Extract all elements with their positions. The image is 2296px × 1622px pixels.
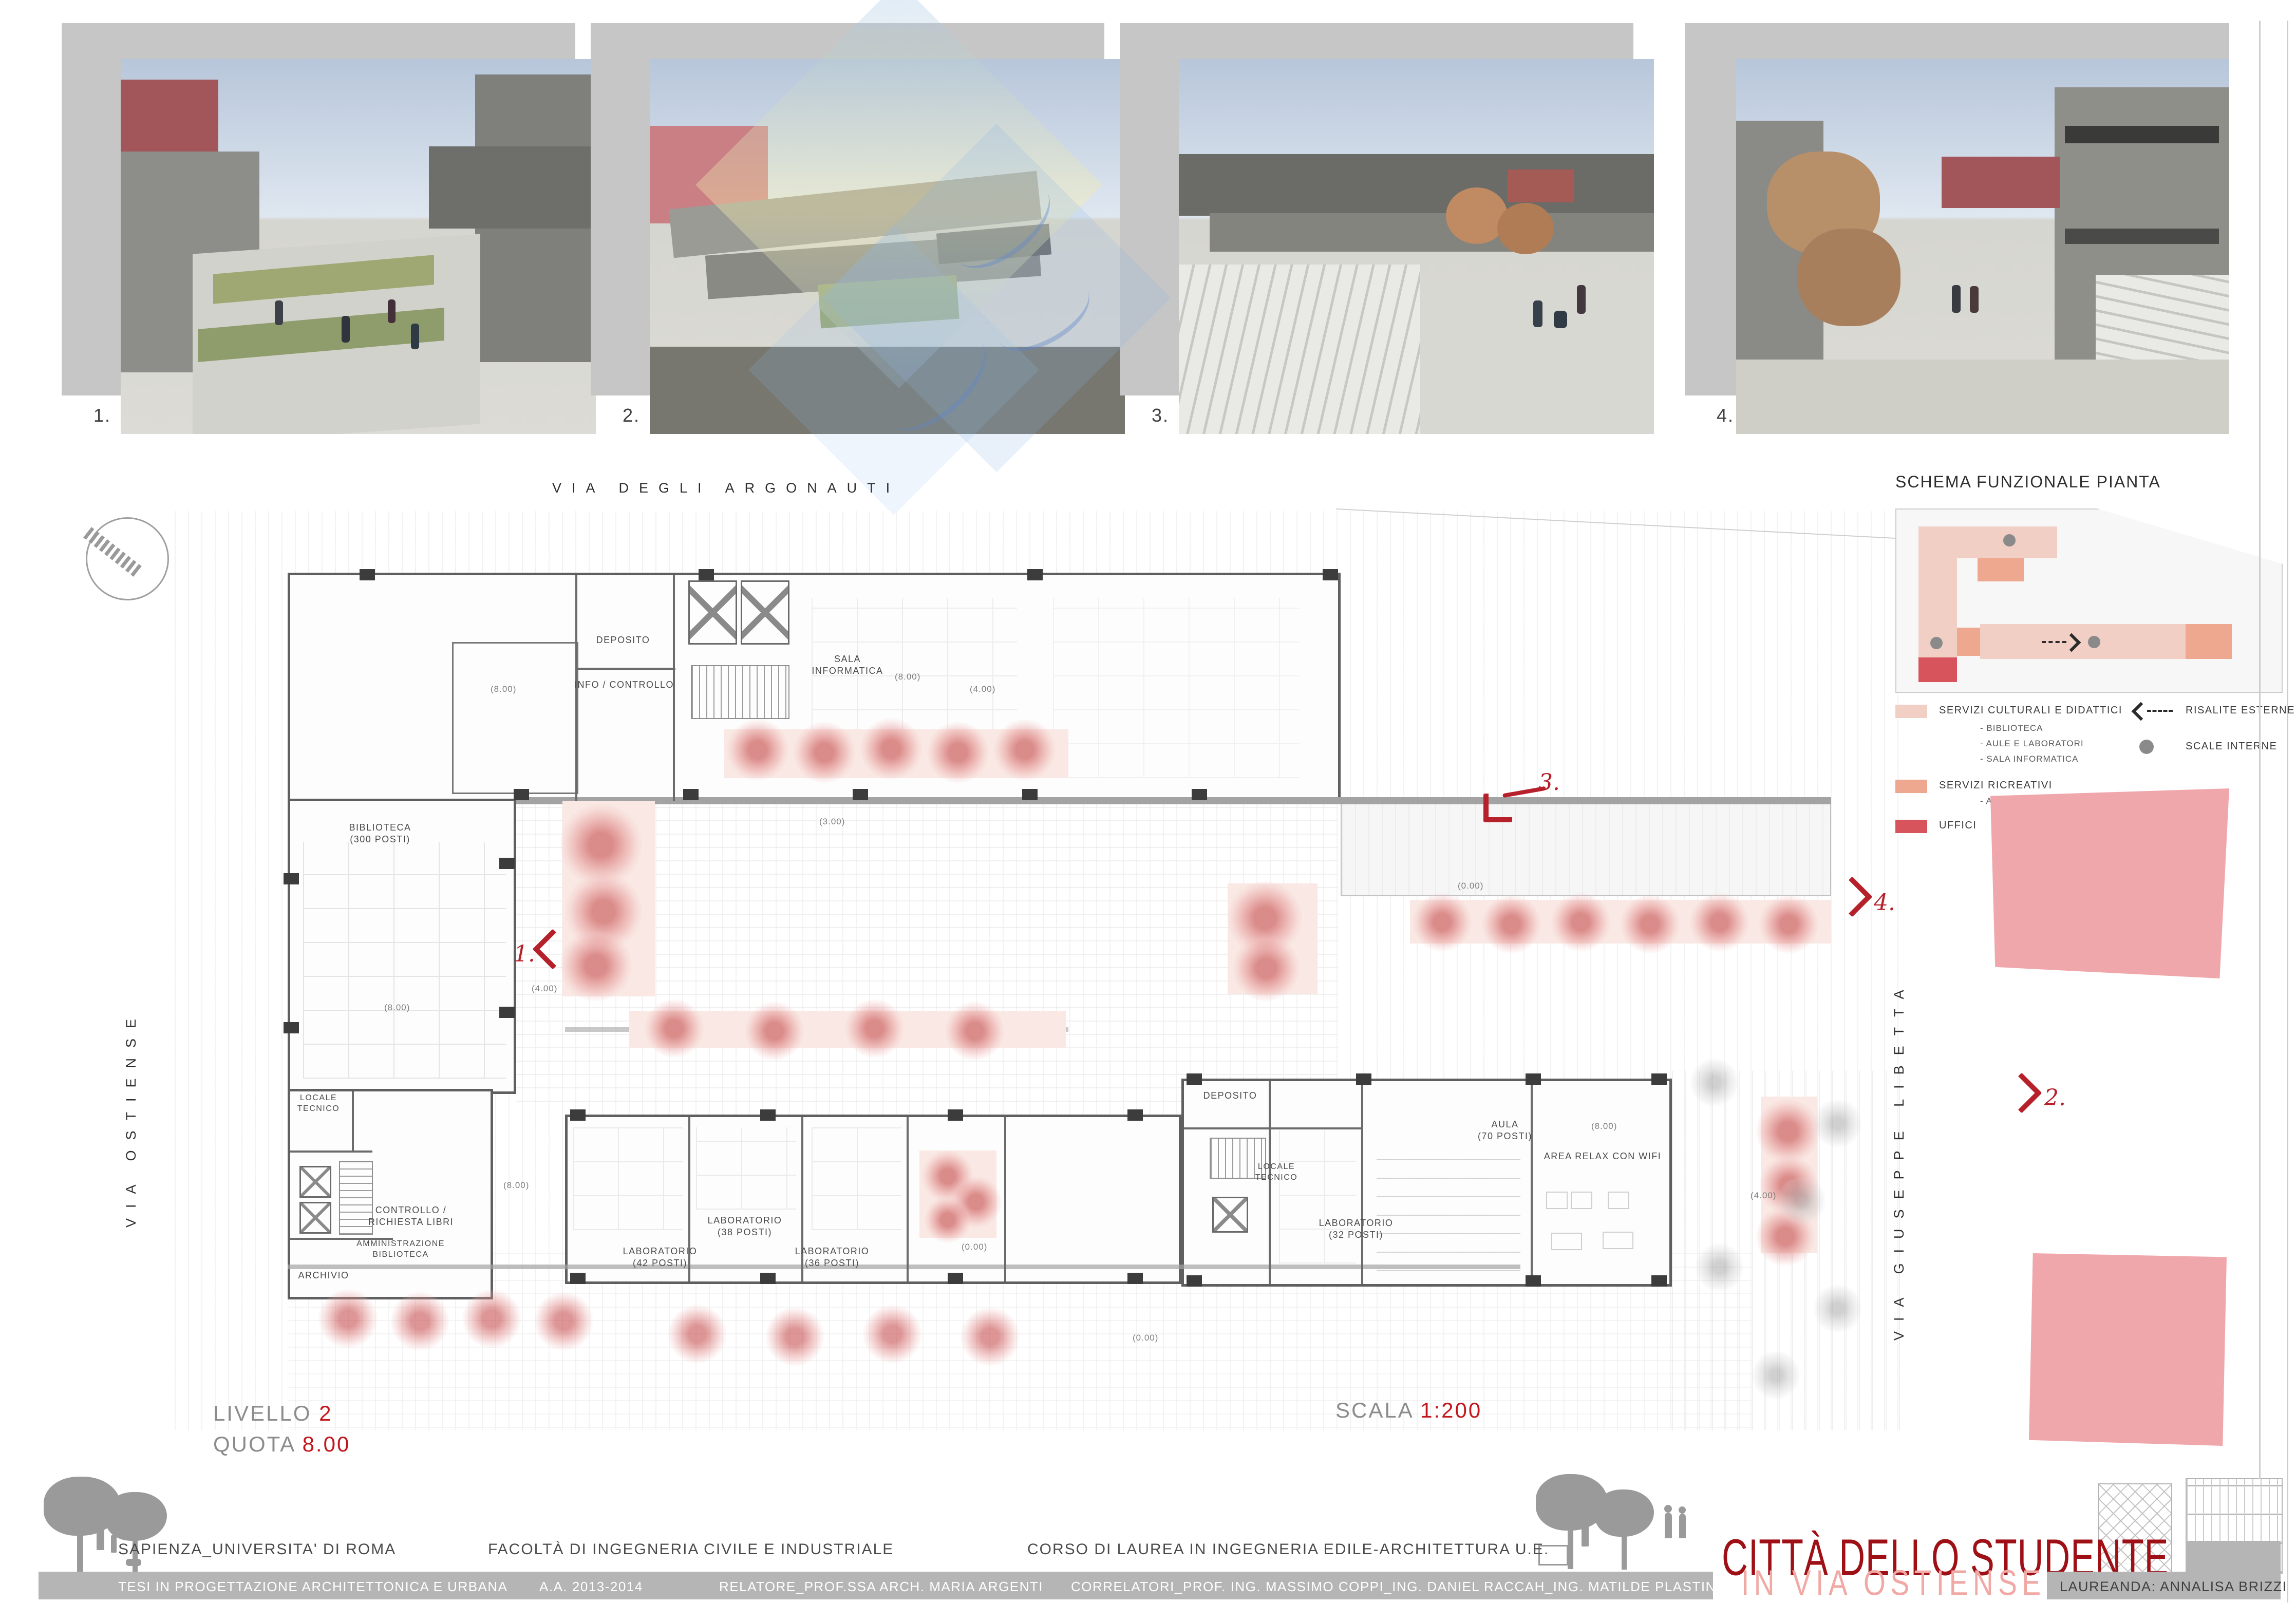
tree <box>1482 895 1541 954</box>
relax-furniture <box>1608 1192 1629 1209</box>
wall-pillar <box>1192 789 1207 800</box>
person-silhouette <box>1577 285 1586 314</box>
wall-pillar <box>760 1273 776 1284</box>
room-label-aula: AULA (70 POSTI) <box>1459 1119 1551 1143</box>
pine-trunk <box>77 1528 83 1572</box>
wall-pillar <box>570 1109 586 1121</box>
legend-item-ricreativi: SERVIZI RICREATIVI <box>1939 780 2053 791</box>
wall-pillar <box>760 1109 776 1121</box>
dim-label: (0.00) <box>962 1242 987 1252</box>
wall-pillar <box>699 569 714 580</box>
legend-subitem: - AULE E LABORATORI <box>1980 739 2084 749</box>
legend-item-culturali: SERVIZI CULTURALI E DIDATTICI <box>1939 705 2122 716</box>
livello-label: LIVELLO 2 <box>213 1401 332 1426</box>
context-tower-base <box>2186 1541 2281 1572</box>
street-label-ostiense: VIA OSTIENSE <box>123 786 139 1228</box>
lab-furniture <box>812 1127 901 1230</box>
minimap-relax <box>2186 624 2232 659</box>
render-shape <box>429 146 596 229</box>
interior-wall <box>1004 1117 1006 1281</box>
wall-pillar <box>948 1109 963 1121</box>
footer-correlatori: CORRELATORI_PROF. ING. MASSIMO COPPI_ING… <box>1071 1579 1726 1595</box>
dim-label: (0.00) <box>1458 881 1483 891</box>
room-label-info-controllo: INFO / CONTROLLO <box>568 679 681 691</box>
wall-pillar <box>683 789 699 800</box>
minimap-stair-dot <box>1930 637 1943 649</box>
render-number-4: 4. <box>1717 405 1734 426</box>
dim-label: (8.00) <box>895 672 920 682</box>
legend-swatch-ricreativi <box>1895 780 1927 793</box>
relax-furniture <box>1546 1192 1568 1209</box>
tree <box>925 1197 971 1243</box>
wall-pillar <box>1526 1275 1541 1287</box>
view-marker-1: 1. <box>514 941 535 967</box>
person-silhouette <box>97 1524 104 1550</box>
relax-furniture <box>1551 1233 1582 1250</box>
tree <box>745 1002 804 1061</box>
tree <box>1551 893 1610 952</box>
person-silhouette <box>1970 286 1979 313</box>
room-label-deposito-east: DEPOSITO <box>1187 1090 1274 1102</box>
wall-pillar <box>1127 1109 1143 1121</box>
tree <box>534 1292 593 1351</box>
minimap-band <box>1980 624 2186 659</box>
person-silhouette <box>1533 300 1542 327</box>
minimap-relax <box>1957 628 1980 656</box>
quota-value: 8.00 <box>303 1432 351 1456</box>
tree <box>1233 935 1300 1002</box>
person-silhouette <box>1664 1505 1672 1513</box>
elevator <box>1212 1197 1248 1233</box>
minimap-band <box>1918 526 2057 558</box>
livello-value: 2 <box>319 1401 332 1425</box>
room-label-biblioteca: BIBLIOTECA (300 POSTI) <box>329 822 431 846</box>
view-marker-4: 4. <box>1874 890 1895 916</box>
room-label-controllo-libri: CONTROLLO / RICHIESTA LIBRI <box>354 1204 467 1229</box>
dim-label: (8.00) <box>503 1180 529 1191</box>
footer-year: A.A. 2013-2014 <box>539 1579 643 1595</box>
quota-text: QUOTA <box>213 1432 295 1456</box>
relax-furniture <box>1571 1192 1592 1209</box>
dim-label: (4.00) <box>532 984 557 994</box>
person-silhouette <box>1554 311 1567 328</box>
person-silhouette <box>342 316 350 343</box>
room-label-locale-tecnico-east: LOCALE TECNICO <box>1243 1162 1310 1183</box>
aula-seat-rows <box>1377 1158 1520 1271</box>
dim-label: (4.00) <box>1751 1191 1776 1201</box>
person-silhouette <box>111 1534 117 1553</box>
furniture <box>1053 598 1300 778</box>
wall-pillar <box>853 789 868 800</box>
render-shape <box>2065 229 2219 244</box>
room-label-amministrazione: AMMINISTRAZIONE BIBLIOTECA <box>334 1239 467 1260</box>
room-label-sala-informatica: SALA INFORMATICA <box>794 653 901 677</box>
building-link-arm <box>1341 801 1831 896</box>
plaza-edge <box>288 1265 1520 1269</box>
wall-pillar <box>284 1022 299 1033</box>
view-marker-2: 2. <box>2044 1085 2066 1111</box>
tree-gray <box>1690 1058 1739 1107</box>
scala-value: 1:200 <box>1420 1398 1482 1422</box>
street-label-libetta: VIA GIUSEPPE LIBETTA <box>1891 899 1907 1341</box>
tree <box>994 719 1056 781</box>
wall-pillar <box>499 1007 515 1018</box>
tree <box>1756 1099 1820 1163</box>
dim-label: (8.00) <box>384 1003 410 1013</box>
library-furniture <box>303 842 506 1079</box>
legend-symbol-scale: SCALE INTERNE <box>2186 741 2277 752</box>
view-marker-arrow-2 <box>2001 1072 2042 1113</box>
render-tree <box>1497 203 1554 254</box>
room-label-archivio: ARCHIVIO <box>288 1270 360 1281</box>
street-label-argonauti: VIA DEGLI ARGONAUTI <box>552 480 900 496</box>
pine-trunk <box>1568 1523 1573 1569</box>
render-shape <box>1179 154 1654 216</box>
interior-wall <box>1531 1081 1533 1284</box>
tree <box>794 722 855 783</box>
person-silhouette <box>1582 1522 1589 1546</box>
footer-university: SAPIENZA_UNIVERSITA' DI ROMA <box>118 1541 396 1558</box>
interior-wall <box>575 668 675 670</box>
tree-gray <box>1752 1351 1800 1400</box>
view-marker-arrow-3 <box>1483 794 1512 822</box>
room-label-lab38: LABORATORIO (38 POSTI) <box>691 1215 799 1239</box>
render-number-1: 1. <box>93 405 111 426</box>
render-number-2: 2. <box>623 405 640 426</box>
room-label-lab32: LABORATORIO (32 POSTI) <box>1300 1217 1413 1241</box>
tree <box>1690 893 1749 952</box>
elevator <box>299 1202 331 1234</box>
dim-label: (8.00) <box>491 684 516 694</box>
minimap-stair-dot <box>2003 534 2016 546</box>
render-shape <box>1210 213 1654 252</box>
person-silhouette <box>411 324 419 349</box>
render-photo-1 <box>121 59 596 434</box>
legend-swatch-culturali <box>1895 705 1927 718</box>
legend-stair-dot <box>2139 740 2154 754</box>
render-shape <box>1942 157 2060 208</box>
pine-trunk <box>1622 1530 1627 1570</box>
relax-furniture <box>1603 1232 1633 1249</box>
render-shape <box>1508 169 1574 202</box>
room-label-deposito: DEPOSITO <box>579 634 667 646</box>
render-shape <box>1736 360 2229 434</box>
dim-label: (3.00) <box>819 817 845 827</box>
render-stairs <box>1179 265 1420 434</box>
elevator <box>741 580 789 645</box>
tree <box>462 1289 521 1348</box>
interior-wall <box>1184 1127 1361 1129</box>
tree <box>845 999 904 1058</box>
room-label-lab42: LABORATORIO (42 POSTI) <box>606 1246 714 1270</box>
person-silhouette <box>388 299 396 323</box>
tree <box>318 1289 378 1348</box>
render-number-3: 3. <box>1152 405 1169 426</box>
footer-faculty: FACOLTÀ DI INGEGNERIA CIVILE E INDUSTRIA… <box>488 1541 894 1558</box>
tree <box>560 930 632 1002</box>
legend-subitem: - BIBLIOTECA <box>1980 723 2043 733</box>
tree-gray <box>1695 1243 1744 1292</box>
wall-pillar <box>1127 1273 1143 1284</box>
elevator <box>299 1166 331 1198</box>
dim-label: (4.00) <box>970 684 995 694</box>
scala-text: SCALA <box>1335 1398 1413 1422</box>
wall-pillar <box>284 873 299 884</box>
wall-pillar <box>514 789 529 800</box>
wall-pillar <box>570 1273 586 1284</box>
legend-title: SCHEMA FUNZIONALE PIANTA <box>1895 473 2161 492</box>
scala-label: SCALA 1:200 <box>1335 1398 1482 1423</box>
person-silhouette <box>275 300 283 325</box>
tree <box>765 1307 824 1366</box>
tree <box>390 1292 449 1351</box>
dim-label: (8.00) <box>1591 1121 1617 1131</box>
footer-relatore: RELATORE_PROF.SSA ARCH. MARIA ARGENTI <box>719 1579 1043 1595</box>
tree <box>645 999 704 1058</box>
legend-item-uffici: UFFICI <box>1939 820 1977 832</box>
lab-furniture <box>696 1127 796 1210</box>
wall-pillar <box>1651 1073 1667 1085</box>
tree <box>863 1305 922 1364</box>
context-building <box>2029 1253 2227 1446</box>
context-building <box>1990 788 2229 978</box>
project-subtitle: IN VIA OSTIENSE <box>1741 1562 2046 1604</box>
tree-gray <box>1813 1099 1862 1148</box>
wall-pillar <box>1187 1275 1202 1287</box>
wall-pillar <box>1027 569 1043 580</box>
person-silhouette <box>1679 1506 1686 1514</box>
presentation-board: 1. 2. 3. 4. <box>0 0 2296 1622</box>
minimap-uffici <box>1918 657 1957 682</box>
footer-laureanda: LAUREANDA: ANNALISA BRIZZI <box>2060 1579 2287 1595</box>
wall-pillar <box>948 1273 963 1284</box>
lab-furniture <box>1279 1130 1356 1263</box>
tree <box>860 718 922 780</box>
view-marker-3: 3. <box>1538 769 1560 796</box>
person-silhouette <box>1679 1514 1686 1538</box>
interior-wall <box>290 1151 372 1153</box>
wall-pillar <box>1187 1073 1202 1085</box>
person-silhouette <box>1665 1513 1672 1538</box>
person-silhouette <box>1952 285 1961 313</box>
person-silhouette <box>96 1516 104 1524</box>
render-photo-4 <box>1736 59 2229 434</box>
render-shape <box>2065 126 2219 143</box>
legend-swatch-uffici <box>1895 820 1927 833</box>
render-tree <box>1798 229 1900 326</box>
livello-text: LIVELLO <box>213 1401 311 1425</box>
tree-gray <box>1813 1284 1862 1333</box>
wall-pillar <box>1526 1073 1541 1085</box>
wc-block <box>452 642 578 794</box>
elevator <box>688 580 737 645</box>
tree <box>1621 895 1680 954</box>
minimap-relax <box>1978 558 2024 581</box>
wall-pillar <box>499 858 515 869</box>
minimap-stair-dot <box>2088 636 2100 648</box>
tree <box>927 722 989 783</box>
tree <box>1413 893 1472 952</box>
tree-gray <box>1777 1176 1826 1225</box>
canopy-bar <box>1341 797 1831 804</box>
dim-label: (0.00) <box>1133 1333 1158 1343</box>
sheet-frame-line <box>2259 21 2261 1479</box>
wall-pillar <box>1323 569 1338 580</box>
room-label-area-relax: AREA RELAX CON WIFI <box>1515 1151 1690 1162</box>
sheet-frame-line <box>2287 21 2288 1602</box>
footer-course: CORSO DI LAUREA IN INGEGNERIA EDILE-ARCH… <box>1027 1541 1549 1558</box>
wall-pillar <box>360 569 375 580</box>
interior-wall <box>907 1117 909 1281</box>
legend-symbol-risalite: RISALITE ESTERNE <box>2186 705 2295 716</box>
wall-pillar <box>1022 789 1038 800</box>
footer-thesis: TESI IN PROGETTAZIONE ARCHITETTONICA E U… <box>118 1579 508 1595</box>
legend-riser-dash <box>2147 710 2173 712</box>
wall-pillar <box>1651 1275 1667 1287</box>
room-label-locale-tecnico: LOCALE TECNICO <box>288 1093 349 1115</box>
interior-wall <box>1361 1081 1363 1284</box>
tree <box>1759 895 1818 954</box>
lab-furniture <box>573 1127 683 1230</box>
legend-subitem: - SALA INFORMATICA <box>1980 754 2079 764</box>
tree <box>668 1305 727 1364</box>
interior-wall <box>352 1091 354 1151</box>
person-silhouette <box>1581 1514 1589 1522</box>
tree <box>961 1307 1020 1366</box>
person-silhouette <box>110 1528 117 1534</box>
stairs <box>691 665 789 719</box>
quota-label: QUOTA 8.00 <box>213 1432 350 1457</box>
render-photo-3 <box>1179 59 1654 434</box>
wall-pillar <box>1356 1073 1371 1085</box>
room-label-lab36: LABORATORIO (36 POSTI) <box>778 1246 886 1270</box>
tree <box>727 719 788 781</box>
dog-silhouette <box>126 1559 141 1566</box>
tree <box>945 1002 1004 1061</box>
